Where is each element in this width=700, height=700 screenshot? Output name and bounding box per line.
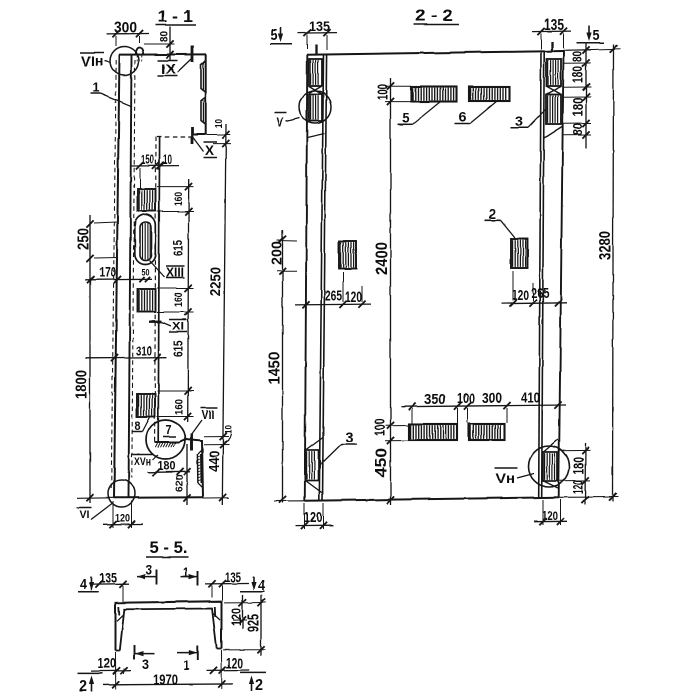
svg-text:3280: 3280 — [597, 231, 615, 260]
svg-text:IX: IX — [161, 62, 176, 77]
svg-text:200: 200 — [269, 241, 286, 265]
svg-text:10: 10 — [224, 425, 234, 434]
svg-text:5: 5 — [271, 27, 278, 44]
svg-text:2400: 2400 — [373, 242, 391, 275]
svg-text:265: 265 — [531, 285, 549, 302]
svg-text:1800: 1800 — [74, 370, 91, 399]
svg-text:620: 620 — [174, 475, 186, 492]
svg-text:3: 3 — [346, 429, 354, 445]
svg-text:1: 1 — [183, 564, 189, 580]
svg-text:VI: VI — [80, 509, 90, 521]
svg-text:VIн: VIн — [81, 54, 103, 69]
svg-text:180: 180 — [571, 457, 588, 474]
svg-text:2250: 2250 — [208, 267, 225, 296]
svg-text:160: 160 — [173, 292, 185, 307]
svg-text:1 - 1: 1 - 1 — [157, 7, 193, 26]
svg-text:5: 5 — [593, 27, 600, 44]
svg-text:180: 180 — [157, 459, 175, 473]
svg-text:3: 3 — [142, 656, 149, 672]
svg-text:410: 410 — [521, 390, 540, 407]
svg-text:10: 10 — [214, 119, 225, 128]
svg-text:50: 50 — [142, 268, 150, 278]
svg-text:2 - 2: 2 - 2 — [415, 6, 453, 25]
svg-text:120: 120 — [345, 289, 362, 306]
svg-text:80: 80 — [571, 123, 585, 135]
svg-text:160: 160 — [174, 192, 185, 206]
svg-text:120: 120 — [115, 513, 130, 525]
svg-text:300: 300 — [482, 390, 502, 407]
svg-text:250: 250 — [76, 228, 93, 250]
svg-text:V: V — [277, 115, 284, 130]
svg-text:135: 135 — [225, 569, 241, 585]
svg-text:XI: XI — [172, 321, 184, 333]
svg-text:170: 170 — [99, 264, 116, 280]
svg-text:180: 180 — [570, 98, 587, 117]
svg-text:925: 925 — [246, 614, 263, 632]
svg-text:120: 120 — [570, 480, 586, 494]
svg-text:1450: 1450 — [267, 352, 284, 385]
svg-text:265: 265 — [325, 288, 342, 305]
svg-text:2: 2 — [489, 206, 496, 222]
svg-text:120: 120 — [229, 608, 244, 626]
svg-text:450: 450 — [374, 448, 391, 477]
svg-text:4: 4 — [80, 576, 88, 593]
svg-text:2: 2 — [79, 678, 87, 695]
svg-text:1: 1 — [184, 657, 190, 673]
svg-text:1970: 1970 — [153, 672, 178, 689]
svg-text:3: 3 — [515, 113, 523, 129]
svg-text:7: 7 — [166, 423, 172, 437]
svg-text:80: 80 — [159, 31, 171, 42]
svg-text:440: 440 — [206, 450, 223, 472]
svg-text:350: 350 — [424, 391, 446, 408]
svg-text:310: 310 — [136, 345, 152, 359]
svg-text:615: 615 — [172, 240, 186, 256]
svg-text:615: 615 — [172, 340, 186, 357]
svg-text:5 - 5.: 5 - 5. — [150, 539, 188, 557]
svg-text:150: 150 — [141, 153, 154, 167]
svg-text:6: 6 — [459, 109, 467, 125]
svg-text:180: 180 — [570, 66, 587, 83]
svg-text:100: 100 — [372, 419, 389, 436]
svg-text:VII: VII — [202, 408, 215, 422]
svg-text:10: 10 — [163, 153, 172, 167]
svg-text:80: 80 — [571, 51, 585, 62]
svg-text:3: 3 — [146, 562, 153, 578]
svg-text:5: 5 — [403, 110, 410, 126]
svg-text:160: 160 — [174, 399, 186, 415]
svg-text:2: 2 — [255, 677, 263, 694]
svg-text:Vн: Vн — [496, 471, 515, 486]
svg-text:120: 120 — [98, 655, 116, 672]
svg-text:X: X — [205, 143, 214, 158]
svg-text:XVн: XVн — [134, 456, 151, 468]
